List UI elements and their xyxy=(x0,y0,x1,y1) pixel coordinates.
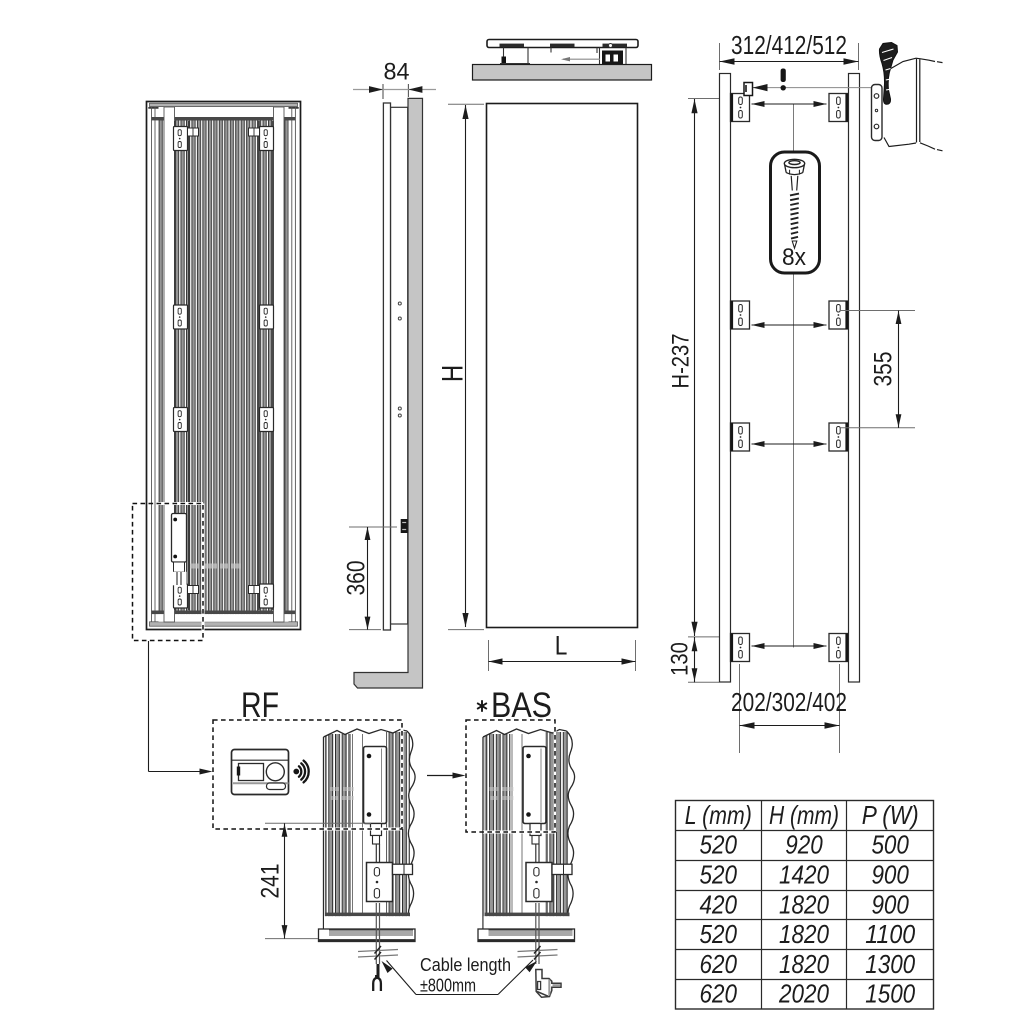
svg-text:420: 420 xyxy=(700,889,738,919)
svg-text:RF: RF xyxy=(241,686,279,725)
svg-text:1300: 1300 xyxy=(865,949,915,979)
svg-text:8x: 8x xyxy=(782,244,806,271)
svg-text:520: 520 xyxy=(700,859,738,889)
svg-text:241: 241 xyxy=(256,863,284,898)
svg-text:±800mm: ±800mm xyxy=(420,976,476,996)
svg-text:84: 84 xyxy=(384,59,410,86)
svg-text:L: L xyxy=(555,631,568,661)
svg-text:2020: 2020 xyxy=(778,979,829,1009)
svg-text:H: H xyxy=(435,365,469,382)
svg-text:H-237: H-237 xyxy=(668,334,695,389)
svg-text:Cable length: Cable length xyxy=(420,955,511,975)
svg-text:1820: 1820 xyxy=(779,889,829,919)
svg-text:520: 520 xyxy=(700,830,738,860)
svg-text:P (W): P (W) xyxy=(862,800,919,830)
svg-text:312/412/512: 312/412/512 xyxy=(731,30,847,60)
svg-text:1820: 1820 xyxy=(779,919,829,949)
svg-text:BAS: BAS xyxy=(491,686,552,725)
svg-text:1420: 1420 xyxy=(779,859,829,889)
svg-text:620: 620 xyxy=(700,979,738,1009)
svg-text:620: 620 xyxy=(700,949,738,979)
svg-text:920: 920 xyxy=(785,830,823,860)
svg-text:900: 900 xyxy=(871,889,909,919)
svg-text:900: 900 xyxy=(871,859,909,889)
svg-text:H (mm): H (mm) xyxy=(769,800,839,830)
svg-text:130: 130 xyxy=(666,642,693,676)
svg-text:1500: 1500 xyxy=(865,979,915,1009)
svg-text:1820: 1820 xyxy=(779,949,829,979)
svg-text:202/302/402: 202/302/402 xyxy=(731,687,847,717)
svg-text:L (mm): L (mm) xyxy=(685,800,752,830)
svg-text:1100: 1100 xyxy=(865,919,915,949)
svg-text:355: 355 xyxy=(869,351,897,386)
svg-text:520: 520 xyxy=(700,919,738,949)
svg-text:500: 500 xyxy=(871,830,909,860)
svg-text:360: 360 xyxy=(342,560,370,595)
